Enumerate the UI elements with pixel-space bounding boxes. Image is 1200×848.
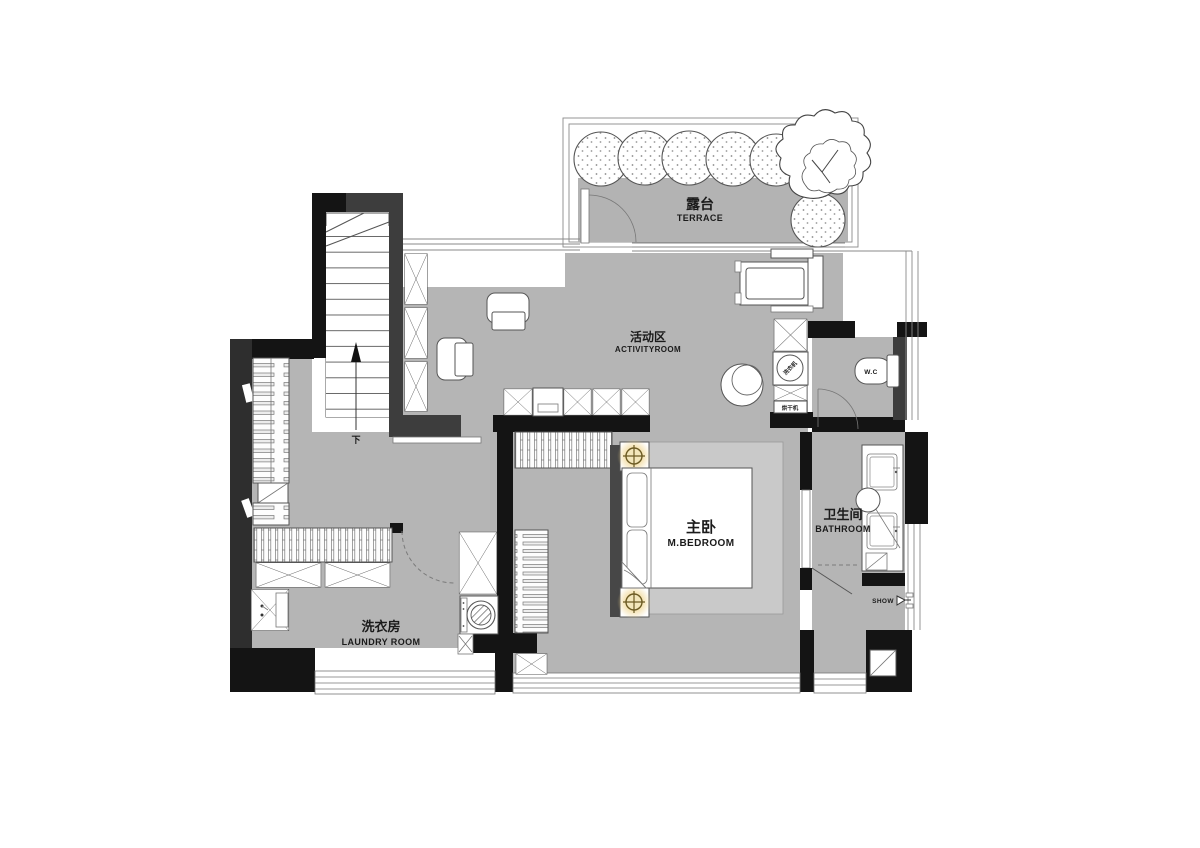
shower-floor bbox=[812, 632, 868, 677]
west-shelf bbox=[253, 358, 289, 525]
toilet-label: W.C bbox=[864, 369, 877, 376]
south-pier-2 bbox=[800, 630, 814, 692]
bed-bath-wall-upper bbox=[800, 432, 812, 490]
bedroom-closet bbox=[515, 432, 612, 468]
armchair bbox=[437, 338, 473, 380]
stair-right-wall bbox=[389, 206, 403, 437]
bookcase-column bbox=[405, 254, 428, 412]
nightstand bbox=[617, 585, 651, 619]
shower-label: SHOW bbox=[872, 598, 894, 605]
stair-direction-label: 下 bbox=[351, 435, 360, 445]
terrace-label-cn: 露台 bbox=[686, 196, 714, 212]
bedroom-label-cn: 主卧 bbox=[686, 518, 716, 536]
appliance-column: 洗衣机 烘干机 bbox=[773, 319, 808, 413]
southwest-corner-wall bbox=[230, 648, 315, 692]
wc-bath-divider-wall bbox=[812, 417, 905, 432]
sink bbox=[867, 513, 900, 549]
armchair bbox=[487, 293, 529, 330]
stair-treads bbox=[326, 226, 389, 417]
vanity bbox=[856, 445, 903, 571]
bed-bath-wall-lower bbox=[800, 568, 812, 590]
cabinet-bottom-stub bbox=[770, 412, 813, 428]
corridor-floor bbox=[312, 432, 513, 528]
window-east-lower bbox=[908, 524, 920, 630]
floor-plan-canvas: 露台 TERRACE 下 bbox=[0, 0, 1200, 848]
floor-drain bbox=[870, 650, 896, 676]
stair-bottom-sill bbox=[393, 437, 481, 443]
linen-shelf bbox=[515, 530, 548, 633]
bath-shower-wall bbox=[862, 573, 905, 586]
laundry-sink bbox=[251, 589, 289, 630]
window-bath-south bbox=[814, 673, 866, 693]
bathroom-label-en: BATHROOM bbox=[815, 524, 871, 534]
bath-pocket-door bbox=[802, 490, 810, 568]
terrace: 露台 TERRACE bbox=[398, 110, 912, 251]
window-bedroom-south bbox=[513, 673, 800, 693]
activity-label-en: ACTIVITYROOM bbox=[615, 345, 681, 354]
drain-box bbox=[866, 553, 887, 570]
laundry-label-cn: 洗衣房 bbox=[361, 619, 400, 634]
stair-left-wall bbox=[312, 193, 326, 358]
staircase: 下 bbox=[326, 213, 389, 445]
window-laundry-south bbox=[315, 671, 495, 694]
big-tree-icon bbox=[776, 110, 871, 199]
floor-plan-drawing: 露台 TERRACE 下 bbox=[0, 0, 1200, 848]
pouf bbox=[721, 364, 763, 406]
bedroom-north-wall bbox=[493, 415, 650, 432]
laundry-label-en: LAUNDRY ROOM bbox=[342, 637, 421, 647]
dryer-label: 烘干机 bbox=[782, 404, 799, 412]
bathroom-label-cn: 卫生间 bbox=[823, 507, 862, 522]
pillow bbox=[627, 473, 647, 527]
south-pier-1 bbox=[495, 648, 513, 692]
storage-row-north bbox=[504, 388, 649, 416]
activity-label-cn: 活动区 bbox=[630, 329, 666, 344]
terrace-label-en: TERRACE bbox=[677, 213, 723, 223]
mid-divider-tbar bbox=[473, 633, 537, 653]
bedroom-label-en: M.BEDROOM bbox=[668, 538, 735, 549]
tree-icon bbox=[791, 193, 845, 247]
terrace-door-leaf bbox=[581, 189, 589, 243]
mid-divider-wall bbox=[497, 415, 513, 653]
wc-top-wall bbox=[808, 321, 855, 338]
wc-room: W.C bbox=[855, 355, 899, 387]
sink bbox=[867, 454, 900, 490]
corner-cabinet bbox=[516, 654, 547, 675]
stair-bottom-wall bbox=[389, 415, 461, 437]
bath-east-wall bbox=[905, 432, 928, 524]
